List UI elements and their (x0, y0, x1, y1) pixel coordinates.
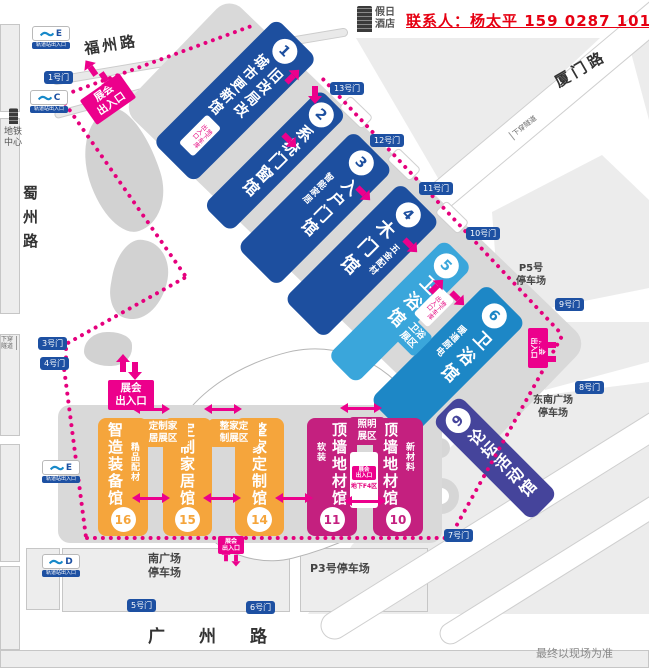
flow-arrow (546, 342, 556, 348)
hall-11-label: 顶墙地材馆 (329, 422, 350, 507)
hall-16-number: 16 (111, 507, 136, 532)
gate-3: 3号门 (38, 337, 67, 350)
metro-exit-caption: 轨道站出入口 (42, 476, 80, 483)
basement-f4-label: 地下F4区 (350, 481, 378, 490)
metro-exit-e2: E 轨道站出入口 (42, 460, 80, 483)
route-dotted (85, 536, 455, 540)
metro-exit-caption: 轨道站出入口 (30, 106, 68, 113)
disclaimer: 最终以现场为准 (536, 645, 613, 661)
sidewalk-strip (0, 566, 20, 650)
flow-arrow-both (348, 407, 374, 410)
gate-9: 9号门 (555, 298, 584, 311)
gate-8: 8号门 (575, 381, 604, 394)
gate-5: 5号门 (127, 599, 156, 612)
hall-11-number: 11 (320, 507, 345, 532)
flow-arrow-both (283, 497, 305, 500)
parking-south: 南广场 停车场 (148, 552, 181, 580)
metro-wave-icon (38, 94, 52, 102)
gate-10: 10号门 (466, 227, 500, 240)
hall-11-sublabel: 软装 (314, 442, 327, 462)
hall-10-sublabel: 新材料 (403, 442, 416, 472)
hall-16-sublabel: 精品配材 (128, 442, 141, 482)
metro-center-label: 地铁 中心 (4, 127, 22, 149)
hall-14-number: 14 (247, 507, 272, 532)
flow-arrow (546, 356, 556, 362)
flow-arrow (120, 362, 126, 372)
gate-13: 13号门 (330, 82, 364, 95)
gate-4: 4号门 (40, 357, 69, 370)
parking-southeast: 东南广场 停车场 (533, 394, 573, 420)
flow-arrow (224, 555, 228, 562)
metro-exit-caption: 轨道站出入口 (42, 570, 80, 577)
road-shuzhou: 蜀州路 (20, 185, 41, 257)
flow-arrow (234, 555, 238, 562)
flow-arrow (312, 86, 318, 96)
parking-p5: P5号 停车场 (516, 262, 546, 288)
flow-arrow-both (211, 497, 233, 500)
hall-15-number: 15 (175, 507, 200, 532)
underpass-label: 下穿隧道 (1, 336, 17, 350)
gate-11: 11号门 (419, 182, 453, 195)
hall-16-label: 智造装备馆 (105, 422, 126, 507)
parking-p3: P3号停车场 (310, 560, 370, 576)
metro-exit-c: C 轨道站出入口 (30, 90, 68, 113)
contact-link[interactable]: 联系人：杨太平 159 0287 1013 (406, 10, 649, 31)
flow-arrow-both (140, 497, 162, 500)
metro-exit-caption: 轨道站出入口 (32, 42, 70, 49)
flow-arrow (132, 362, 138, 372)
zone-whole-home: 整家定 制展区 (209, 419, 259, 447)
zone-lighting: 照明 展区 (349, 417, 385, 445)
flow-arrow-both (140, 408, 162, 411)
metro-exit-e: E 轨道站出入口 (32, 26, 70, 49)
metro-wave-icon (49, 558, 63, 566)
road-fuzhou: 福州路 (83, 30, 140, 59)
expo-entrance: 展会 出入口 (108, 380, 154, 410)
metro-center-icon (9, 108, 18, 124)
gate-7: 7号门 (444, 529, 473, 542)
road-guangzhou: 广州路 (148, 622, 301, 647)
sidewalk-strip (0, 24, 20, 112)
hotel-building-icon (357, 6, 372, 32)
metro-wave-icon (50, 464, 64, 472)
exhibition-site-map: 1 旧改局改 城市更新馆 地下车库 出入口 2 系统门窗馆 3 智能家居 入户门… (0, 0, 649, 668)
hotel-label: 假日 酒店 (375, 7, 395, 31)
flow-arrow-both (212, 408, 234, 411)
gate-12: 12号门 (370, 134, 404, 147)
gate-1: 1号门 (44, 71, 73, 84)
metro-exit-d: D 轨道站出入口 (42, 554, 80, 577)
metro-wave-icon (40, 30, 54, 38)
sidewalk-strip (0, 444, 20, 562)
hall-10-number: 10 (386, 507, 411, 532)
flow-arrow-both (352, 500, 378, 503)
gate-6: 6号门 (246, 601, 275, 614)
zone-custom-home: 定制家 居展区 (138, 419, 188, 447)
